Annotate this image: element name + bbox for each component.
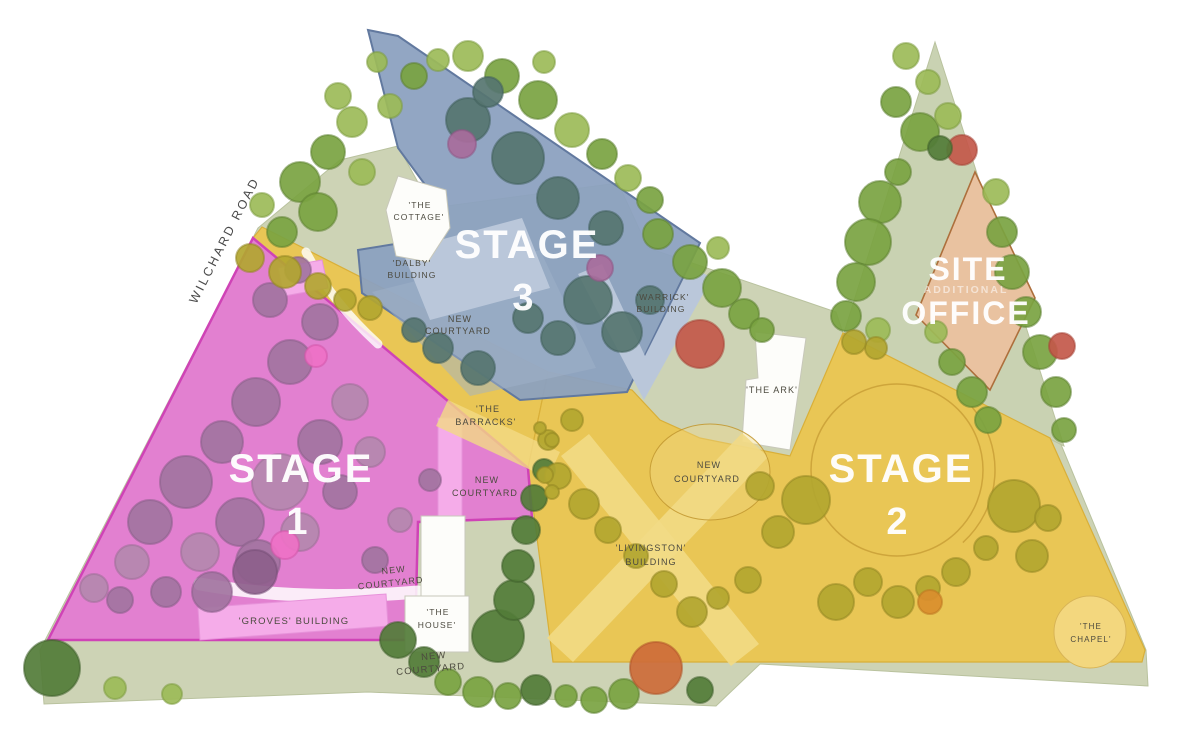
stage1-upper-courtyard-label-line1: NEW xyxy=(475,475,499,485)
tree xyxy=(942,558,970,586)
tree xyxy=(882,586,914,618)
tree xyxy=(630,642,682,694)
tree xyxy=(561,409,583,431)
tree xyxy=(935,103,961,129)
tree xyxy=(893,43,919,69)
tree xyxy=(676,320,724,368)
tree xyxy=(299,193,337,231)
tree xyxy=(461,351,495,385)
tree xyxy=(939,349,965,375)
stage2-courtyard-label-line1: NEW xyxy=(697,460,721,470)
tree xyxy=(302,304,338,340)
tree xyxy=(541,321,575,355)
stage2-courtyard-oval xyxy=(650,424,770,520)
tree xyxy=(762,516,794,548)
tree xyxy=(818,584,854,620)
tree xyxy=(502,550,534,582)
tree xyxy=(233,550,277,594)
tree xyxy=(1016,540,1048,572)
tree xyxy=(104,677,126,699)
tree xyxy=(707,237,729,259)
tree xyxy=(473,77,503,107)
stage3-courtyard-label-line2: COURTYARD xyxy=(425,326,491,336)
tree xyxy=(378,94,402,118)
tree xyxy=(388,508,412,532)
tree xyxy=(916,70,940,94)
tree xyxy=(865,337,887,359)
chapel-label-line2: CHAPEL' xyxy=(1070,635,1111,644)
tree xyxy=(975,407,1001,433)
stage1-number: 1 xyxy=(286,501,309,543)
tree xyxy=(673,245,707,279)
tree xyxy=(495,683,521,709)
stage3-number: 3 xyxy=(512,277,535,319)
cottage-label-line2: COTTAGE' xyxy=(394,212,445,222)
stage2-number: 2 xyxy=(886,501,909,543)
site-plan-page: WILCHARD ROAD STAGE 3 STAGE 1 STAGE 2 SI… xyxy=(0,0,1200,750)
tree xyxy=(643,219,673,249)
tree xyxy=(401,63,427,89)
tree xyxy=(305,345,327,367)
tree xyxy=(637,187,663,213)
tree xyxy=(859,181,901,223)
chapel-footprint xyxy=(1054,596,1126,668)
tree xyxy=(162,684,182,704)
tree xyxy=(537,467,553,483)
tree xyxy=(831,301,861,331)
tree xyxy=(564,276,612,324)
tree xyxy=(837,263,875,301)
tree xyxy=(521,675,551,705)
dalby-label-line2: BUILDING xyxy=(388,270,437,280)
tree xyxy=(587,139,617,169)
warrick-label-line1: 'WARRICK' xyxy=(637,292,690,302)
tree xyxy=(537,177,579,219)
tree xyxy=(512,516,540,544)
house-label-line2: HOUSE' xyxy=(418,620,456,630)
tree xyxy=(957,377,987,407)
tree xyxy=(1035,505,1061,531)
tree xyxy=(305,273,331,299)
tree xyxy=(845,219,891,265)
tree xyxy=(842,330,866,354)
tree xyxy=(492,132,544,184)
tree xyxy=(854,568,882,596)
tree xyxy=(533,51,555,73)
tree xyxy=(928,136,952,160)
tree xyxy=(918,590,942,614)
livingston-label-line1: 'LIVINGSTON' xyxy=(616,543,687,553)
tree xyxy=(555,113,589,147)
tree xyxy=(419,469,441,491)
south-courtyard-label-line1: NEW xyxy=(421,650,447,663)
warrick-label-line2: BUILDING xyxy=(637,304,686,314)
tree xyxy=(115,545,149,579)
tree xyxy=(735,567,761,593)
tree xyxy=(519,81,557,119)
house-building-upper xyxy=(421,516,465,602)
tree xyxy=(1041,377,1071,407)
tree xyxy=(651,571,677,597)
tree xyxy=(325,83,351,109)
tree xyxy=(358,296,382,320)
tree xyxy=(423,333,453,363)
tree xyxy=(602,312,642,352)
tree xyxy=(80,574,108,602)
tree xyxy=(367,52,387,72)
barracks-label-line1: 'THE xyxy=(476,404,500,414)
site-office-label-line2: OFFICE xyxy=(901,295,1030,331)
tree xyxy=(181,533,219,571)
tree xyxy=(334,289,356,311)
tree xyxy=(1052,418,1076,442)
tree xyxy=(521,485,547,511)
barracks-label-line2: BARRACKS' xyxy=(455,417,516,427)
groves-label: 'GROVES' BUILDING xyxy=(239,616,350,627)
tree xyxy=(332,384,368,420)
tree xyxy=(453,41,483,71)
cottage-label-line1: 'THE xyxy=(408,200,431,210)
chapel-label-line1: 'THE xyxy=(1080,622,1102,631)
tree xyxy=(236,244,264,272)
tree xyxy=(402,318,426,342)
tree xyxy=(232,378,280,426)
tree xyxy=(545,485,559,499)
tree xyxy=(1049,333,1075,359)
tree xyxy=(569,489,599,519)
stage2-label: STAGE xyxy=(829,447,974,491)
tree xyxy=(269,256,301,288)
tree xyxy=(595,517,621,543)
tree xyxy=(885,159,911,185)
dalby-label-line1: 'DALBY' xyxy=(393,258,432,268)
tree xyxy=(267,217,297,247)
tree xyxy=(534,422,546,434)
tree xyxy=(988,480,1040,532)
tree xyxy=(746,472,774,500)
tree xyxy=(677,597,707,627)
stage1-label: STAGE xyxy=(229,447,374,491)
tree xyxy=(555,685,577,707)
tree xyxy=(311,135,345,169)
tree xyxy=(687,677,713,703)
tree xyxy=(380,622,416,658)
tree xyxy=(268,340,312,384)
tree xyxy=(448,130,476,158)
tree xyxy=(615,165,641,191)
livingston-label-line2: BUILDING xyxy=(625,557,676,567)
stage3-courtyard-label-line1: NEW xyxy=(448,314,472,324)
ark-label: 'THE ARK' xyxy=(746,385,798,395)
tree xyxy=(463,677,493,707)
tree xyxy=(107,587,133,613)
tree xyxy=(128,500,172,544)
stage1-upper-courtyard-label-line2: COURTYARD xyxy=(452,488,518,498)
stage2-courtyard-label-line2: COURTYARD xyxy=(674,474,740,484)
tree xyxy=(581,687,607,713)
house-label-line1: 'THE xyxy=(426,607,449,617)
stage3-label: STAGE xyxy=(455,223,600,267)
tree xyxy=(427,49,449,71)
tree xyxy=(151,577,181,607)
tree xyxy=(216,498,264,546)
tree xyxy=(750,318,774,342)
tree xyxy=(494,580,534,620)
site-plan-map: WILCHARD ROAD STAGE 3 STAGE 1 STAGE 2 SI… xyxy=(0,0,1200,750)
tree xyxy=(545,433,559,447)
site-office-label-line1: SITE xyxy=(928,251,1007,287)
tree xyxy=(337,107,367,137)
tree xyxy=(987,217,1017,247)
tree xyxy=(160,456,212,508)
tree xyxy=(881,87,911,117)
tree xyxy=(974,536,998,560)
tree xyxy=(192,572,232,612)
tree xyxy=(349,159,375,185)
tree xyxy=(782,476,830,524)
tree xyxy=(707,587,729,609)
tree xyxy=(24,640,80,696)
tree xyxy=(983,179,1009,205)
